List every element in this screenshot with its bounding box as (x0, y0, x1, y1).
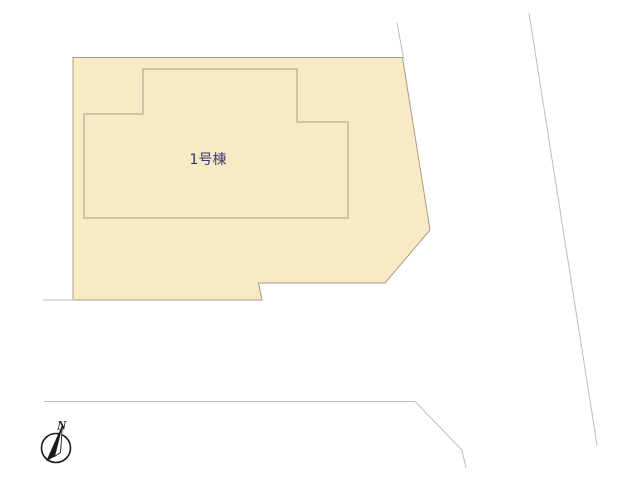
road-edge-right (529, 13, 597, 445)
road-edge-bottom (44, 402, 466, 469)
compass-north-letter: N (56, 418, 67, 433)
road-edge-right-upper (397, 23, 404, 58)
site-plan-svg: 1号棟 N (0, 0, 640, 480)
building-label: 1号棟 (190, 152, 227, 168)
north-compass: N (42, 418, 71, 463)
site-plan: 1号棟 N (0, 0, 640, 480)
